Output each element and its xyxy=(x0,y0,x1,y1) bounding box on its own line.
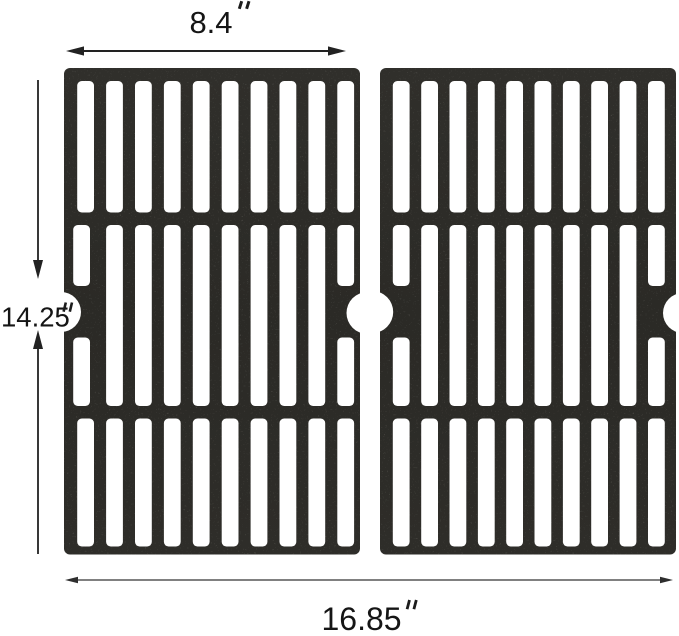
svg-text:14.25: 14.25 xyxy=(1,302,70,333)
svg-text:16.85: 16.85 xyxy=(322,601,402,631)
svg-text:8.4: 8.4 xyxy=(189,5,232,40)
